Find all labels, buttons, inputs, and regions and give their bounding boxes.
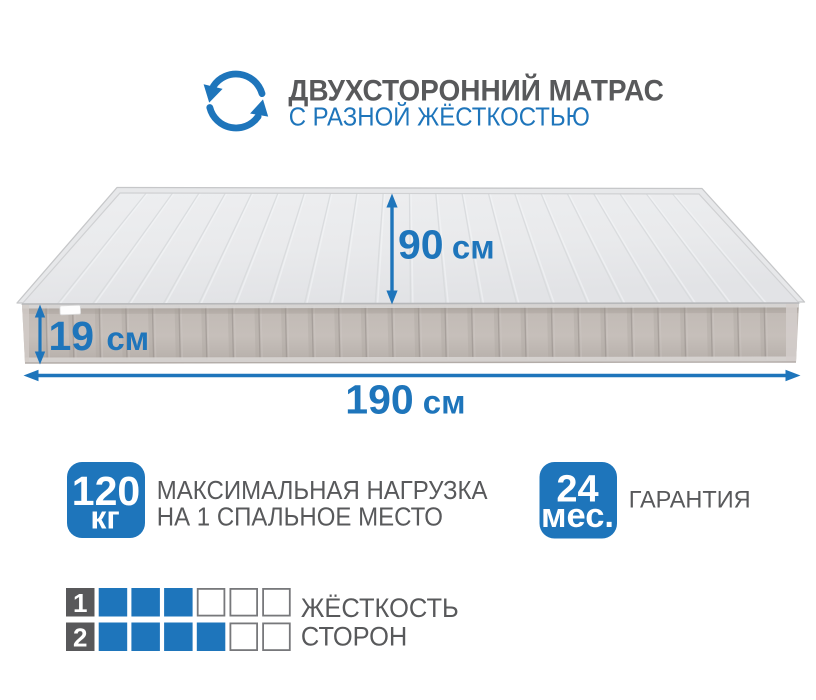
svg-text:1: 1 xyxy=(73,588,87,618)
svg-text:ГАРАНТИЯ: ГАРАНТИЯ xyxy=(629,486,751,513)
svg-text:С РАЗНОЙ ЖЁСТКОСТЬЮ: С РАЗНОЙ ЖЁСТКОСТЬЮ xyxy=(289,100,590,131)
svg-text:ЖЁСТКОСТЬ: ЖЁСТКОСТЬ xyxy=(301,595,459,623)
svg-text:кг: кг xyxy=(90,500,119,536)
svg-text:мес.: мес. xyxy=(541,497,614,535)
svg-text:МАКСИМАЛЬНАЯ НАГРУЗКА: МАКСИМАЛЬНАЯ НАГРУЗКА xyxy=(157,476,488,505)
svg-text:2: 2 xyxy=(73,623,87,653)
svg-text:СТОРОН: СТОРОН xyxy=(301,623,407,651)
svg-text:НА 1 СПАЛЬНОЕ МЕСТО: НА 1 СПАЛЬНОЕ МЕСТО xyxy=(157,503,443,532)
